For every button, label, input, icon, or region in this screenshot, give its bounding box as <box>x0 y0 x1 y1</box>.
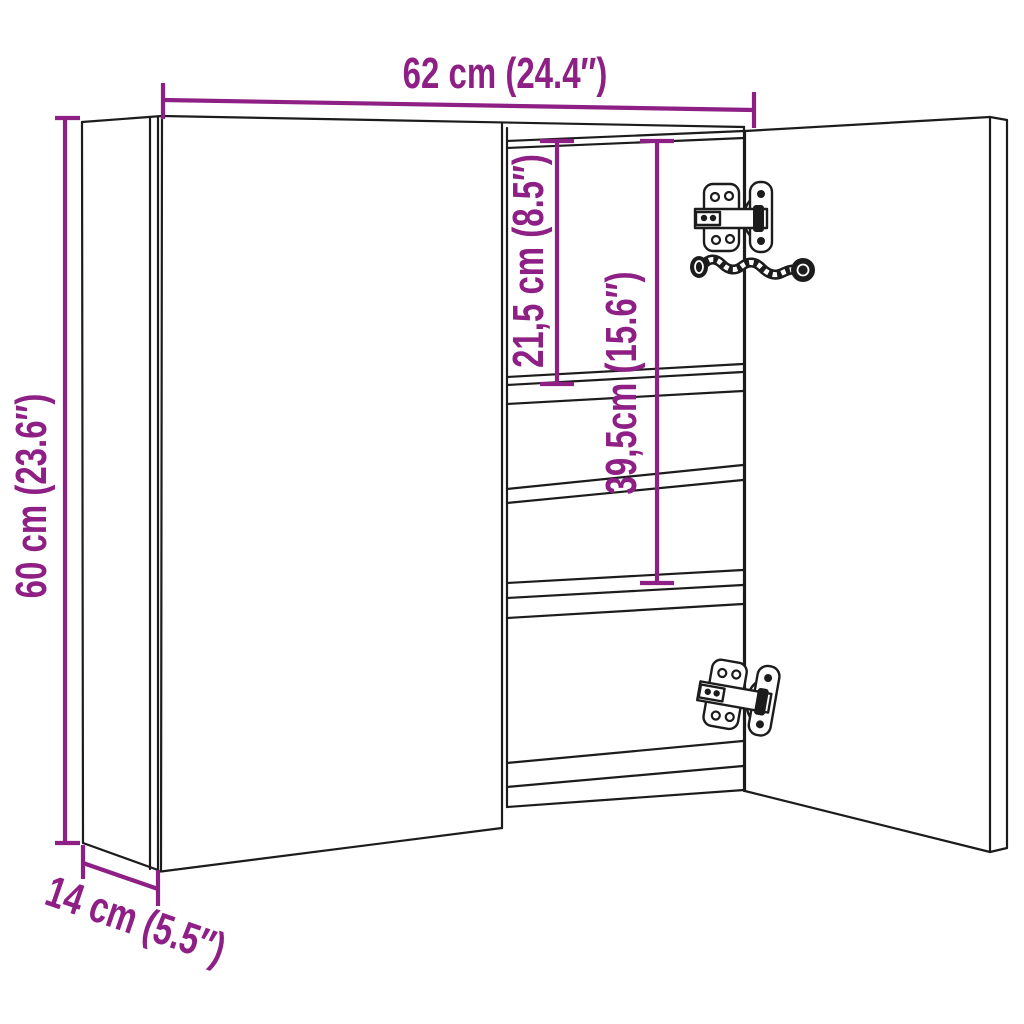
lower-compartment-label: 39,5cm (15.6″) <box>598 271 647 494</box>
width-dimension-label: 62 cm (24.4″) <box>403 50 608 99</box>
height-dimension-label: 60 cm (23.6″) <box>8 394 57 599</box>
diagram-canvas: 62 cm (24.4″) 60 cm (23.6″) 14 cm (5.5″)… <box>0 0 1024 1024</box>
top-hinge-icon <box>695 182 772 252</box>
upper-compartment-label: 21,5 cm (8.5″) <box>505 154 554 368</box>
background <box>0 0 1024 1024</box>
cabinet-dimension-diagram: 62 cm (24.4″) 60 cm (23.6″) 14 cm (5.5″)… <box>0 0 1024 1024</box>
